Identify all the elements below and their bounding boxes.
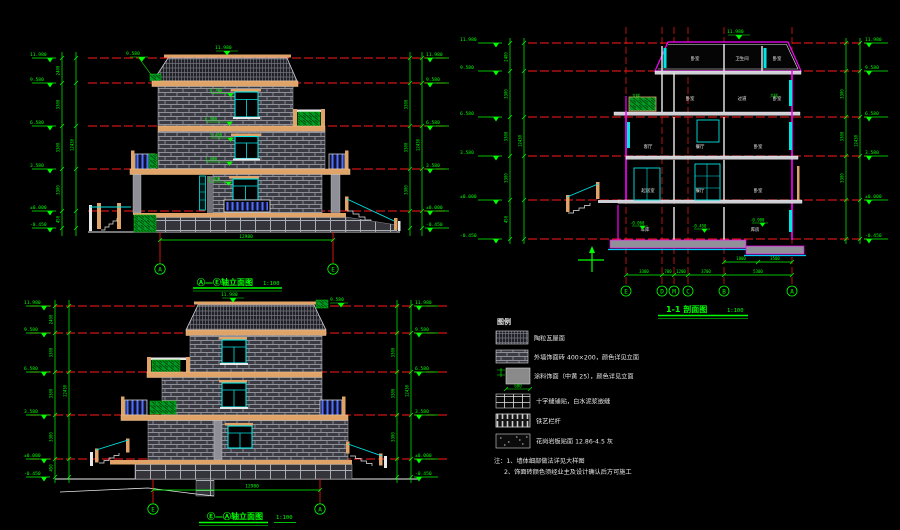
exterior-stair-left [566,182,618,240]
svg-text:3500: 3500 [770,256,780,261]
svg-text:6.580: 6.580 [30,120,44,126]
level-marker-triangles [47,58,53,233]
svg-text:2400: 2400 [504,52,509,62]
legend-note-1: 注：1、墙体细部做法详见大样图 [494,457,585,465]
rear-title: Ⓔ—Ⓐ轴立面图 1:100 [199,511,296,526]
svg-text:12430: 12430 [416,138,421,151]
svg-text:1200: 1200 [676,269,686,274]
ridge-level-marker: 11.980 [727,29,750,39]
balcony-2f-right [320,397,346,416]
svg-text:客厅: 客厅 [644,143,653,150]
svg-text:11.980: 11.980 [727,29,744,35]
rear-elevation: 11.980 9.580 6.580 3.580 ±0.000 -0.450 2… [24,292,447,526]
svg-text:±0.000: ±0.000 [865,194,882,200]
plinth [135,465,352,480]
porch-strip-window [200,176,206,210]
svg-text:A: A [318,507,322,514]
level-texts-left: 11.980 9.580 6.580 3.580 ±0.000 -0.450 2… [460,37,523,239]
rear-bottom-dim: 12980 E A [148,479,325,514]
svg-text:11.980: 11.980 [24,300,41,306]
legend-note-2: 2、饰面砖颜色须经业主及设计确认后方可施工 [504,468,632,476]
svg-text:1:100: 1:100 [727,308,744,314]
svg-text:9.580: 9.580 [460,65,474,71]
svg-text:3300: 3300 [404,142,409,152]
svg-text:-0.900: -0.900 [750,218,765,223]
ridge-cap [164,55,291,58]
svg-text:±0.000: ±0.000 [460,194,477,200]
legend-item-roof: 陶粒瓦屋面 [496,331,565,344]
plinth-band [148,213,346,218]
svg-text:3300: 3300 [504,173,509,183]
svg-text:3300: 3300 [404,99,409,109]
svg-text:餐厅: 餐厅 [696,143,705,150]
svg-text:6.580: 6.580 [460,111,474,117]
ridge-level-marker: 11.980 [221,292,244,302]
svg-text:3300: 3300 [391,347,396,357]
svg-text:3300: 3300 [49,388,54,398]
svg-text:M: M [672,289,676,296]
window-2f [219,380,248,409]
porch-column [214,421,222,461]
svg-text:9.580: 9.580 [865,65,879,71]
svg-text:9.580: 9.580 [330,297,344,303]
svg-text:9.580: 9.580 [426,77,440,83]
bay-frame [797,166,800,202]
svg-text:过道: 过道 [738,95,747,102]
svg-text:5.400: 5.400 [210,133,223,138]
svg-text:-0.450: -0.450 [865,233,882,239]
window-1f [229,176,259,200]
floor-band-1f [121,415,348,421]
porch-column-left [133,175,141,214]
svg-text:E: E [151,507,155,514]
roof [153,58,297,81]
svg-text:卧室: 卧室 [754,143,763,150]
railing [329,154,345,169]
svg-text:6.580: 6.580 [415,366,429,372]
section-drawing: 11.980 9.580 6.580 3.580 ±0.000 -0.450 2… [460,27,888,319]
svg-text:12430: 12430 [518,134,523,147]
basement-level-markers: -0.060 -0.450 -0.900 [630,218,768,233]
legend: 图例 陶粒瓦屋面 外墙饰面砖 400×200，颜色详见立面 600 涂料饰面（中… [494,317,639,476]
svg-text:12430: 12430 [70,138,75,151]
handrail [567,184,598,197]
svg-text:450: 450 [504,215,509,223]
svg-text:-0.450: -0.450 [24,471,41,477]
porch-jamb [207,176,213,213]
svg-text:3300: 3300 [49,347,54,357]
section-title: 1-1 剖面图 1:100 [658,304,748,319]
svg-text:3.580: 3.580 [460,150,474,156]
svg-text:起居室: 起居室 [641,187,655,194]
svg-text:9.580: 9.580 [415,327,429,333]
svg-text:卧室: 卧室 [691,55,700,62]
svg-text:9.580: 9.580 [24,327,38,333]
svg-text:±0.000: ±0.000 [415,453,432,459]
svg-text:600: 600 [514,384,522,389]
1f-cabinet [695,164,720,200]
window-3f [219,337,248,365]
1f-door [634,168,660,200]
terrace-3f-left [147,357,190,372]
floor-band-2f [147,372,322,378]
svg-text:2.400: 2.400 [208,177,221,182]
svg-text:3300: 3300 [56,142,61,152]
balcony-2f-left [131,151,157,170]
svg-text:2400: 2400 [49,314,54,324]
wall-3f [158,87,293,127]
svg-text:3300: 3300 [639,269,649,274]
svg-text:A: A [790,289,794,296]
window-2f [231,134,261,161]
svg-text:3300: 3300 [840,89,845,99]
legend-item-paint: 600 涂料饰面（中黄 25），颜色详见立面 [497,368,634,391]
svg-text:11.980: 11.980 [30,52,47,58]
attic-window [664,48,667,68]
svg-text:2400: 2400 [56,65,61,75]
svg-text:D: D [660,289,664,296]
svg-text:1:100: 1:100 [276,515,293,521]
svg-text:-0.450: -0.450 [30,222,47,228]
terrace-3f-right [293,109,325,127]
svg-text:B: B [722,289,726,296]
rear-building: 11.980 9.580 [60,292,387,496]
svg-text:外墙饰面砖 400×200，颜色详见立面: 外墙饰面砖 400×200，颜色详见立面 [534,354,639,362]
architectural-drawing-sheet: 11.980 9.580 6.580 3.580 ±0.000 -0.450 2… [0,0,900,530]
svg-text:3300: 3300 [391,432,396,442]
svg-text:3300: 3300 [840,173,845,183]
svg-text:3300: 3300 [49,432,54,442]
svg-text:3700: 3700 [701,269,711,274]
handrail [96,440,128,450]
wall-window-strip [789,122,792,150]
legend-item-tile: 十字缝铺贴，白水泥浆嵌缝 [496,394,610,408]
svg-text:450: 450 [49,464,54,472]
plinth-band [110,460,352,465]
svg-text:陶粒瓦屋面: 陶粒瓦屋面 [534,335,565,343]
svg-text:大样: 大样 [632,92,640,98]
svg-text:6.580: 6.580 [24,366,38,372]
eave-gutter-planter [150,74,161,81]
stair-right [346,442,387,469]
svg-text:E: E [624,289,628,296]
entry-steps-left [89,203,131,231]
svg-text:3.600: 3.600 [205,157,218,162]
section-cut-arrow [578,246,604,272]
window-1f [225,423,253,448]
railing [125,400,147,415]
foundation-pier [196,479,214,496]
cad-drawing-canvas: 11.980 9.580 6.580 3.580 ±0.000 -0.450 2… [0,0,900,530]
attic-floor-slab [655,71,801,74]
svg-text:1-1 剖面图: 1-1 剖面图 [666,304,707,314]
svg-text:大样: 大样 [770,92,778,98]
planter-3f [298,112,320,126]
svg-text:3300: 3300 [56,185,61,195]
window-3f [231,89,261,119]
svg-text:3.580: 3.580 [24,409,38,415]
legend-item-brick: 外墙饰面砖 400×200，颜色详见立面 [496,350,639,363]
svg-text:9.580: 9.580 [126,51,140,57]
svg-text:±0.000: ±0.000 [24,453,41,459]
svg-text:5300: 5300 [753,269,763,274]
eave-band [186,330,326,336]
grade-polyline [60,488,214,496]
svg-text:Ⓐ—Ⓔ轴立面图: Ⓐ—Ⓔ轴立面图 [197,277,253,287]
front-bottom-dim: 12980 A E [155,232,338,274]
level-texts-left: 11.980 9.580 6.580 3.580 ±0.000 -0.450 2… [24,300,68,477]
ridge-level-marker: 11.980 [215,45,238,55]
svg-text:1:100: 1:100 [263,281,280,287]
section-bottom-dims: 1800 3500 3300 700 1200 3700 5300 E D M … [621,256,797,296]
svg-text:700: 700 [664,269,672,274]
svg-text:C: C [686,289,690,296]
svg-text:11.980: 11.980 [426,52,443,58]
wall-window-strip [789,210,792,232]
svg-text:±0.000: ±0.000 [426,205,443,211]
3f-floor-slab [614,112,800,115]
1f-floor-slab [618,200,802,203]
svg-text:9.580: 9.580 [30,77,44,83]
svg-text:12430: 12430 [405,384,410,397]
svg-text:铁艺栏杆: 铁艺栏杆 [536,418,561,426]
svg-text:卧室: 卧室 [686,95,695,102]
svg-text:3300: 3300 [504,131,509,141]
svg-text:11.980: 11.980 [865,37,882,43]
svg-text:450: 450 [56,215,61,223]
front-elevation: 11.980 9.580 6.580 3.580 ±0.000 -0.450 2… [30,45,449,291]
svg-text:6.900: 6.900 [205,117,218,122]
svg-text:-0.450: -0.450 [426,222,443,228]
legend-item-granite: 花岗岩板贴面 12.86-4.5 灰 [496,434,613,448]
svg-text:-0.060: -0.060 [630,221,645,226]
svg-text:11.980: 11.980 [221,292,238,298]
svg-text:十字缝铺贴，白水泥浆嵌缝: 十字缝铺贴，白水泥浆嵌缝 [536,398,610,406]
attic-window [764,48,767,68]
balcony-2f-right [329,151,349,170]
svg-text:11.980: 11.980 [415,300,432,306]
svg-text:-0.450: -0.450 [415,471,432,477]
plinth [148,218,346,233]
svg-text:11.980: 11.980 [460,37,477,43]
handrail [347,199,394,221]
level-texts-left: 11.980 9.580 6.580 3.580 ±0.000 -0.450 2… [30,52,75,228]
grade-planter-left [133,213,157,232]
terrace-planter [629,97,656,111]
svg-text:±0.000: ±0.000 [30,205,47,211]
svg-text:3.580: 3.580 [30,163,44,169]
eave-band [152,81,298,87]
stair-right [345,197,401,233]
balcony-1f [224,200,270,212]
front-title: Ⓐ—Ⓔ轴立面图 1:100 [193,277,282,291]
svg-text:3.580: 3.580 [865,150,879,156]
eave-level-marker: 9.580 [126,51,152,76]
svg-text:Ⓔ—Ⓐ轴立面图: Ⓔ—Ⓐ轴立面图 [207,511,263,521]
axis-extension-lines [153,479,320,503]
section-building: 卧室 卫生间 卧室 卧室 过道 卧室 客厅 餐厅 卧室 起居室 餐厅 卧室 车库 [566,42,806,272]
legend-heading: 图例 [497,317,511,326]
svg-text:3300: 3300 [504,89,509,99]
svg-text:3300: 3300 [404,185,409,195]
floor-band-2f [158,126,325,132]
wall-window-strip [627,122,630,148]
roof [186,305,326,330]
svg-text:12430: 12430 [63,384,68,397]
svg-text:卧室: 卧室 [773,55,782,62]
svg-text:卧室: 卧室 [754,187,763,194]
svg-text:3300: 3300 [56,99,61,109]
svg-text:3300: 3300 [840,131,845,141]
svg-text:3300: 3300 [391,388,396,398]
railing [320,400,342,415]
svg-text:12980: 12980 [245,484,259,490]
svg-text:卫生间: 卫生间 [735,55,748,62]
svg-text:-0.450: -0.450 [460,233,477,239]
svg-text:涂料饰面（中黄 25），颜色详见立面: 涂料饰面（中黄 25），颜色详见立面 [534,373,634,381]
2f-interior-window [697,120,719,142]
svg-text:-0.450: -0.450 [692,224,707,229]
svg-text:花岗岩板贴面 12.86-4.5 灰: 花岗岩板贴面 12.86-4.5 灰 [536,438,613,446]
svg-text:3.580: 3.580 [426,163,440,169]
svg-text:11.980: 11.980 [215,45,232,51]
ridge-cap [194,302,318,305]
svg-text:12430: 12430 [854,134,859,147]
handrail [348,444,382,456]
svg-text:6.580: 6.580 [865,111,879,117]
front-building: 11.980 9.580 8.700 6.900 [89,45,401,232]
foundation [608,240,806,256]
svg-text:E: E [331,267,335,274]
svg-text:12980: 12980 [239,234,253,240]
svg-text:3.580: 3.580 [415,409,429,415]
svg-text:A: A [158,267,162,274]
svg-text:8.700: 8.700 [210,88,223,93]
svg-text:6.580: 6.580 [426,120,440,126]
wall-window-strip [789,80,792,106]
roof-vent-planter [316,300,328,308]
svg-text:库房: 库房 [751,226,760,233]
legend-item-railing: 铁艺栏杆 [496,414,561,427]
wall-3f [190,336,322,373]
2f-floor-slab [626,156,798,159]
level-texts-right: 11.980 9.580 6.580 3.580 ±0.000 -0.450 3… [404,52,443,228]
svg-text:1800: 1800 [736,256,746,261]
porch-column-right [331,175,340,213]
floor-band-1f [130,169,350,175]
